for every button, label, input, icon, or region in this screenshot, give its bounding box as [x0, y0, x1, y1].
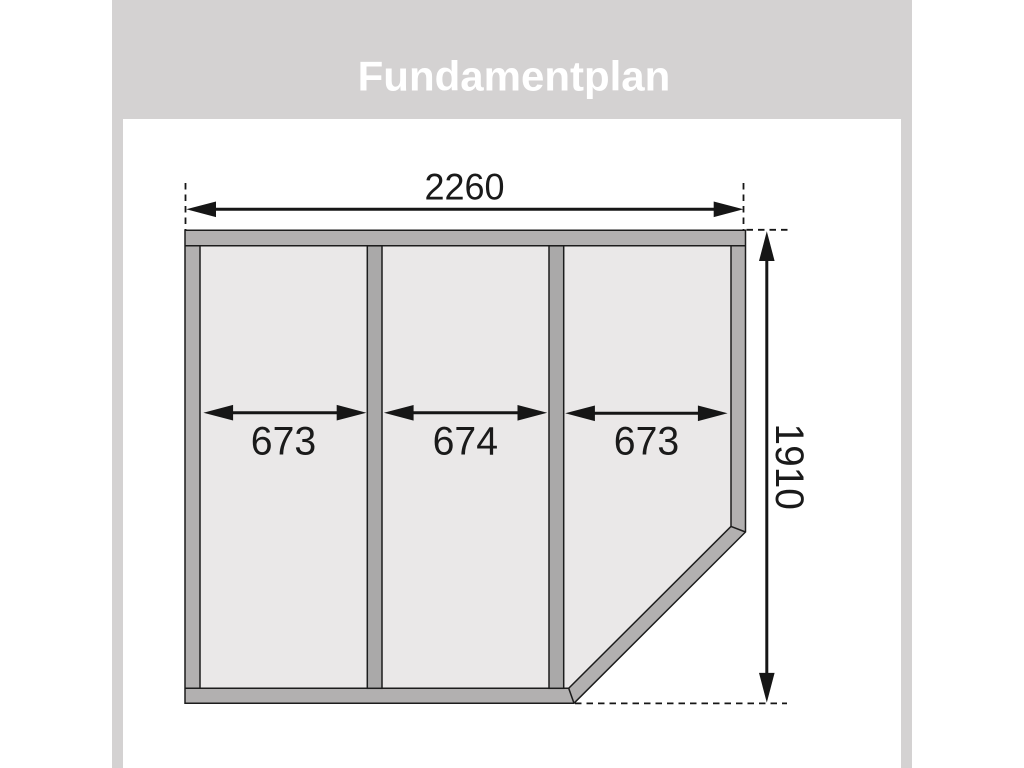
svg-text:673: 673 — [614, 419, 679, 463]
svg-text:Fundamentplan: Fundamentplan — [358, 53, 671, 100]
svg-text:674: 674 — [433, 419, 498, 463]
svg-text:673: 673 — [251, 419, 316, 463]
svg-text:1910: 1910 — [767, 424, 812, 510]
svg-text:2260: 2260 — [424, 166, 504, 208]
